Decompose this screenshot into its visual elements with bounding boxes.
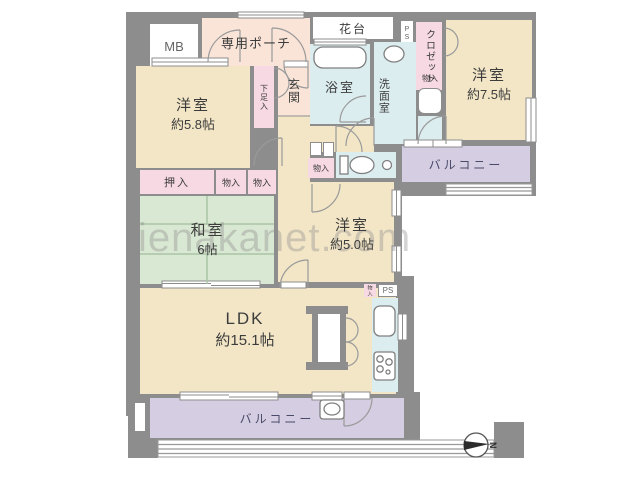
room-pipe-space-bottom: PS (378, 284, 398, 297)
compass-icon: N (464, 433, 498, 457)
wall-post-right (494, 422, 524, 458)
room-ldk (140, 288, 396, 394)
railing-bottom (158, 440, 494, 457)
room-washroom (374, 42, 416, 144)
storage-b-label: 物入 (253, 176, 271, 189)
oshiire-label: 押入 (164, 174, 190, 190)
room-private-porch: 専用ポーチ (202, 18, 310, 66)
storage-a-label: 物入 (222, 176, 240, 189)
washroom-extension (418, 116, 442, 144)
storage-washroom-label: 物入 (422, 73, 438, 84)
floor-plan: MB 専用ポーチ 花台 PS クロゼット 物入 玄関 下足入 押入 物入 物入 … (0, 0, 640, 480)
entrance-label: 玄関 (286, 78, 303, 104)
room-flower-stand: 花台 (312, 16, 394, 40)
room-storage-b: 物入 (248, 170, 276, 194)
storage-hall-label: 物入 (313, 163, 329, 174)
meter-box-label: MB (164, 39, 184, 54)
room-storage-a: 物入 (216, 170, 246, 194)
room-western-7-5 (446, 20, 532, 140)
room-western-5-0 (310, 182, 394, 282)
room-meter-box: MB (150, 24, 198, 68)
balcony-left-slit (134, 402, 146, 432)
room-balcony-right: バルコニー (402, 146, 530, 182)
pipe-space-bottom-label: PS (383, 286, 394, 295)
room-western-5-8 (136, 66, 250, 168)
pipe-space-top-label: PS (404, 26, 411, 42)
room-entrance: 玄関 (278, 66, 310, 116)
private-porch-label: 専用ポーチ (221, 33, 291, 52)
balcony-bottom-label: バルコニー (240, 410, 315, 427)
room-bathroom (310, 44, 370, 124)
shoe-storage-label: 下足入 (259, 84, 270, 111)
flower-stand-label: 花台 (339, 20, 367, 37)
room-storage-hall: 物入 (308, 158, 334, 178)
kitchen-strip (372, 298, 398, 392)
hallway-vertical (278, 116, 310, 282)
hall-cabinet-top-b (323, 142, 334, 157)
room-balcony-bottom: バルコニー (150, 398, 404, 438)
hall-cabinet-top-a (310, 142, 322, 156)
storage-kitchen-label: 物入 (367, 285, 374, 297)
room-storage-washroom: 物入 (418, 70, 442, 86)
room-toilet (336, 152, 396, 178)
room-japanese (140, 196, 274, 284)
balcony-right-label: バルコニー (429, 156, 504, 173)
room-shoe-storage: 下足入 (254, 66, 274, 128)
room-oshiire: 押入 (140, 170, 214, 194)
washer-pan (418, 88, 442, 114)
room-storage-kitchen: 物入 (364, 284, 376, 297)
